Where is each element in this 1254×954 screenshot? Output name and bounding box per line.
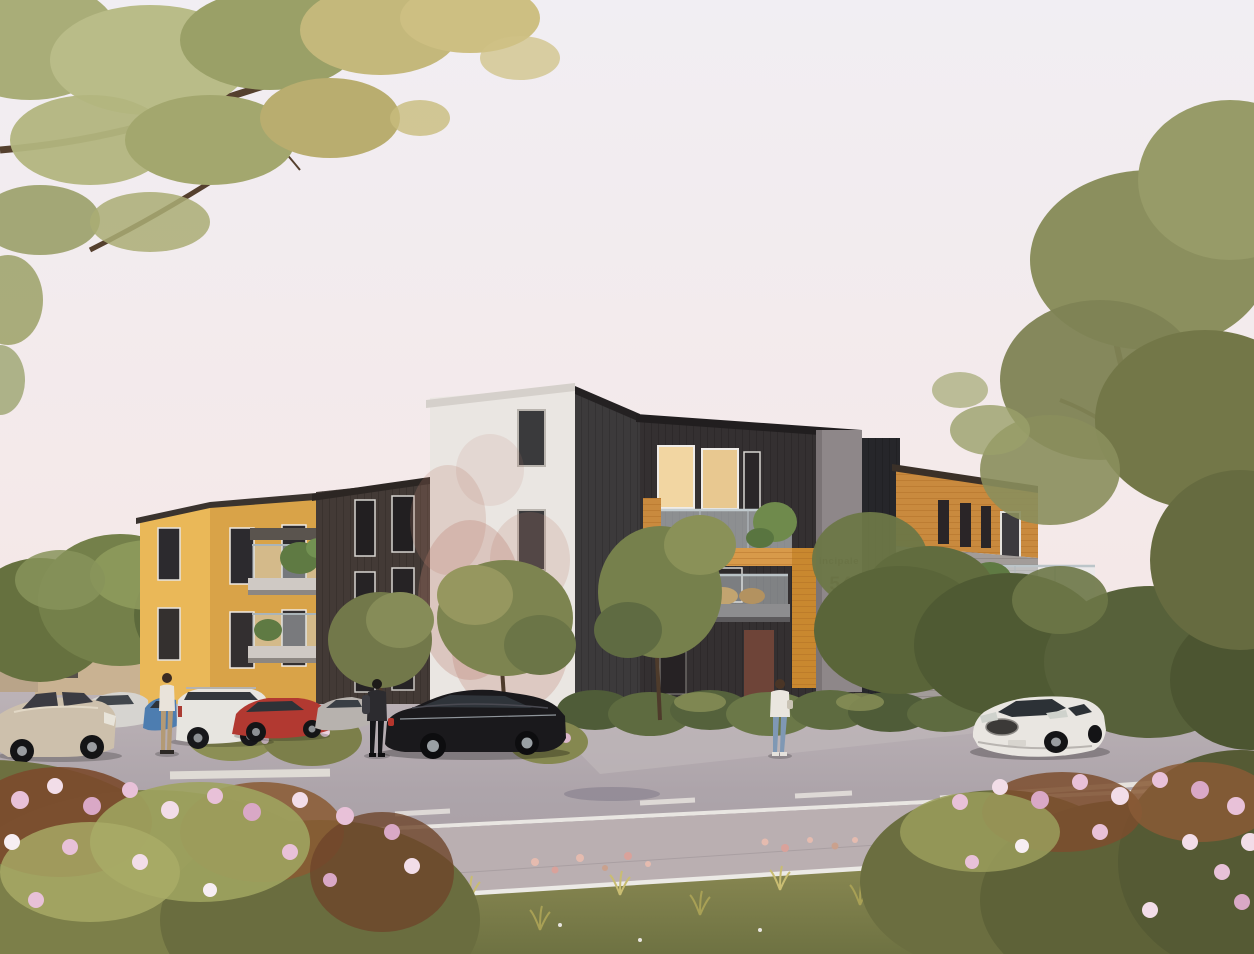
lane-dash bbox=[640, 800, 695, 803]
lit-window bbox=[658, 446, 694, 508]
puddle bbox=[564, 787, 660, 801]
balcony-plant bbox=[254, 619, 282, 641]
entry-door bbox=[744, 630, 774, 702]
lane-dash bbox=[395, 811, 450, 814]
architectural-rendering: incipale 54 bbox=[0, 0, 1254, 954]
lit-window bbox=[702, 449, 738, 509]
facade-yellow-block bbox=[136, 493, 316, 706]
lane-dash bbox=[795, 793, 852, 796]
backpack bbox=[362, 695, 370, 714]
handbag bbox=[787, 700, 793, 709]
scene-canvas: incipale 54 bbox=[0, 0, 1254, 954]
